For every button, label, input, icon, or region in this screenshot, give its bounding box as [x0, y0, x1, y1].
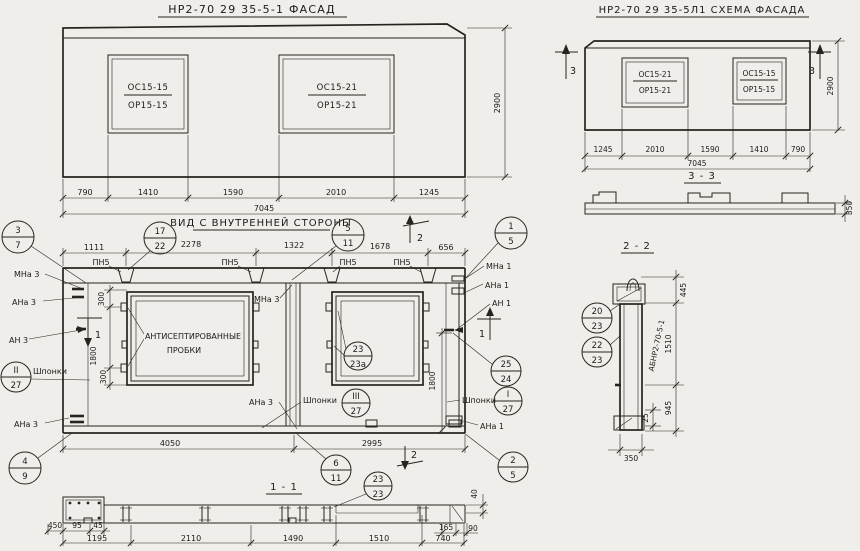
dim: 300	[97, 292, 106, 307]
inner-window-2	[326, 292, 429, 385]
callout-top: 2	[510, 456, 515, 466]
section-1-1-dimensions: 450 95 45 1195 2110 1490 1510 740 165 90…	[45, 489, 488, 546]
window-code: ОР15-21	[317, 101, 357, 111]
callout-bottom: 23	[592, 322, 603, 332]
section-mark-label: 1	[95, 330, 101, 341]
mna3-label: МНа 3	[14, 270, 39, 279]
dim-height: 2900	[493, 93, 502, 113]
schema-panel-outline	[585, 41, 810, 130]
callout-top: 25	[501, 360, 512, 370]
dim: 1245	[593, 145, 612, 154]
an3-label: АН 3	[9, 336, 28, 345]
ana3-label: АНа 3	[12, 298, 36, 307]
window-code: ОР15-21	[639, 86, 671, 95]
dim: 945	[664, 401, 673, 416]
dim: 1800	[89, 346, 98, 365]
dim: 2995	[362, 439, 382, 448]
section-mark-label: 1	[479, 329, 485, 340]
callout-bottom: 23	[592, 356, 603, 366]
section-band	[63, 497, 465, 523]
dim: 1410	[138, 188, 158, 197]
section-2-mark-bottom: 2	[397, 446, 423, 470]
dim: 445	[679, 283, 688, 298]
callout-II-27: II 27 Шпонки	[1, 362, 90, 392]
section-mark-label: 3	[809, 66, 815, 77]
callout-6-11: 6 11	[297, 434, 351, 485]
callout-bottom: 27	[351, 407, 362, 417]
window-code: ОС15-15	[743, 69, 776, 78]
schema-title: НР2-70 29 35-5Л1 СХЕМА ФАСАДА	[599, 5, 806, 16]
callout-17-22: 17 22	[128, 222, 176, 270]
top-notch	[420, 268, 436, 282]
dim: 1195	[87, 534, 107, 543]
dim-total: 7045	[687, 159, 706, 168]
dim: 95	[72, 521, 82, 530]
schema-dimensions: 1245 2010 1590 1410 790 7045 2900	[582, 38, 845, 172]
dim: 1590	[700, 145, 719, 154]
dim: 1490	[283, 534, 303, 543]
mna3-label: МНа 3	[254, 295, 279, 304]
dim: 2010	[326, 188, 346, 197]
ana1-label: АНа 1	[485, 281, 509, 290]
rib-markers	[120, 506, 429, 522]
callout-I-27: I 27 Шпонки	[447, 387, 522, 415]
facade-window-2: ОС15-21 ОР15-21	[279, 55, 394, 133]
top-notch	[248, 268, 264, 282]
section-3-mark-left: 3	[555, 44, 578, 79]
callout-bottom: 11	[331, 474, 342, 484]
pn5-label: ПН5	[221, 258, 238, 267]
inner-right-dim-chain: 1800	[428, 328, 452, 433]
blueprint-canvas: НР2-70 29 35-5-1 ФАСАД ОС15-15 ОР15-15 О…	[0, 0, 860, 551]
callout-23-23: 23 23	[334, 472, 392, 507]
inner-bottom-dimensions: 4050 2995	[60, 435, 468, 453]
callout-top: 23	[353, 345, 364, 355]
pn5-label: ПН5	[339, 258, 356, 267]
section-1-1: 1 - 1 23 23	[45, 472, 488, 546]
callout-top: I	[507, 390, 510, 400]
anchor-bracket	[452, 288, 464, 294]
panel-section-column	[614, 304, 644, 430]
dim: 25	[641, 413, 650, 423]
plugs-note-line1: АНТИСЕПТИРОВАННЫЕ	[145, 332, 241, 341]
facade-window-1: ОС15-15 ОР15-15	[108, 55, 188, 133]
dim-total: 7045	[254, 204, 274, 213]
shponki-label: Шпонки	[462, 396, 496, 405]
blueprint-sheet: НР2-70 29 35-5-1 ФАСАД ОС15-15 ОР15-15 О…	[0, 0, 860, 551]
dim: 450	[48, 521, 63, 530]
callout-bottom: 7	[15, 241, 20, 251]
callout-top: 22	[592, 341, 603, 351]
inner-window-1: АНТИСЕПТИРОВАННЫЕ ПРОБКИ	[121, 292, 259, 385]
callout-1-5: 1 5	[463, 217, 527, 281]
callout-bottom: 22	[155, 242, 166, 252]
callout-bottom: 23	[373, 490, 384, 500]
section-3-3-title: 3 - 3	[688, 171, 716, 182]
callout-bottom: 27	[503, 405, 514, 415]
section-1-1-title: 1 - 1	[270, 482, 298, 493]
callout-2-5: 2 5	[464, 433, 528, 482]
callout-23-23a: 23 23а	[334, 311, 372, 370]
callout-top: 5	[345, 224, 350, 234]
callout-bottom: 24	[501, 375, 512, 385]
facade-panel-outline	[63, 24, 465, 177]
section-2-2-title: 2 - 2	[623, 241, 651, 252]
dim: 1322	[284, 241, 304, 250]
dim: 1800	[428, 371, 437, 390]
section-1-mark-right: 1	[477, 307, 501, 340]
section-3-3-profile	[585, 203, 835, 214]
dim: 40	[470, 489, 479, 499]
window-code: ОС15-21	[639, 70, 672, 79]
shponki-label: Шпонки	[303, 396, 337, 405]
callout-top: 6	[333, 459, 338, 469]
section-mark-label: 3	[570, 66, 576, 77]
ana3-label: АНа 3	[249, 398, 273, 407]
section-2-mark-top: 2	[403, 215, 429, 244]
dim: 1410	[749, 145, 768, 154]
section-3-3: 3 - 3 350	[585, 171, 854, 222]
callout-top: III	[352, 392, 360, 402]
section-1-mark-left: 1	[77, 318, 102, 347]
schema-drawing: НР2-70 29 35-5Л1 СХЕМА ФАСАДА ОС15-21 ОР…	[555, 5, 845, 172]
callout-III-27: III 27 Шпонки	[262, 389, 370, 428]
facade-drawing: НР2-70 29 35-5-1 ФАСАД ОС15-15 ОР15-15 О…	[60, 3, 512, 218]
section-3-mark-right: 3	[808, 44, 831, 79]
dim: 2278	[181, 240, 201, 249]
inner-view-title: ВИД С ВНУТРЕННЕЙ СТОРОНЫ	[170, 216, 352, 229]
callout-bottom: 9	[22, 472, 27, 482]
window-code: ОС15-21	[317, 83, 358, 93]
ana3-label: АНа 3	[14, 420, 38, 429]
callout-bottom: 27	[11, 381, 22, 391]
dim: 350	[624, 454, 639, 463]
callout-top: 3	[15, 226, 20, 236]
callout-top: 1	[508, 222, 513, 232]
dim: 1678	[370, 242, 390, 251]
dim: 165	[439, 523, 454, 532]
dim: 656	[438, 243, 453, 252]
dim-height: 2900	[826, 76, 835, 95]
callout-bottom: 5	[510, 471, 515, 481]
callout-top: 23	[373, 475, 384, 485]
mullion	[286, 283, 300, 426]
section-mark-label: 2	[417, 233, 423, 244]
dim: 740	[435, 534, 450, 543]
callout-top: II	[13, 366, 18, 376]
dim: 4050	[160, 439, 180, 448]
window-code: ОС15-15	[128, 83, 169, 93]
an1-label: АН 1	[492, 299, 511, 308]
callout-top: 4	[22, 457, 27, 467]
dim-thickness: 350	[845, 201, 854, 216]
plugs-note-line2: ПРОБКИ	[167, 346, 201, 355]
anchor-bracket	[452, 276, 464, 281]
dim: 790	[791, 145, 806, 154]
callout-4-9: 4 9	[9, 433, 72, 484]
dim: 1590	[223, 188, 243, 197]
callout-top: 20	[592, 307, 603, 317]
window-code: ОР15-15	[743, 85, 775, 94]
schema-window-2: ОС15-15 ОР15-15	[733, 58, 786, 104]
pn5-label: ПН5	[92, 258, 109, 267]
lifting-loop	[627, 279, 639, 291]
callout-bottom: 5	[508, 237, 513, 247]
dim: 45	[93, 521, 103, 530]
top-notch	[324, 268, 340, 282]
callout-top: 17	[155, 227, 166, 237]
ana1-label: АНа 1	[480, 422, 504, 431]
dim: 1510	[369, 534, 389, 543]
facade-title: НР2-70 29 35-5-1 ФАСАД	[168, 3, 335, 16]
section-mark-label: 2	[411, 450, 417, 461]
callout-bottom: 23а	[350, 360, 366, 370]
facade-dimensions: 790 1410 1590 2010 1245 7045 2900	[60, 25, 512, 218]
callout-20-23: 20 23	[582, 303, 620, 333]
section-2-2: 2 - 2 20 23 22 23 АБНР2-70-5-1 4	[582, 241, 688, 463]
dim: 790	[77, 188, 92, 197]
dim: 1510	[664, 334, 673, 353]
dim: 1245	[419, 188, 439, 197]
callout-25-24: 25 24	[453, 333, 521, 386]
pn5-label: ПН5	[393, 258, 410, 267]
shponki-label: Шпонки	[33, 367, 67, 376]
inner-view-drawing: ВИД С ВНУТРЕННЕЙ СТОРОНЫ	[1, 215, 528, 485]
mna1-label: МНа 1	[486, 262, 511, 271]
dim: 2010	[645, 145, 664, 154]
window-code: ОР15-15	[128, 101, 168, 111]
dim: 90	[468, 524, 478, 533]
dim: 2110	[181, 534, 201, 543]
schema-window-1: ОС15-21 ОР15-21	[622, 58, 688, 107]
callout-bottom: 11	[343, 239, 354, 249]
callout-22-23: 22 23	[582, 336, 620, 367]
dim: 1111	[84, 243, 104, 252]
top-notch	[118, 268, 134, 282]
dim: 300	[99, 370, 108, 385]
pn5-labels: ПН5 ПН5 ПН5 ПН5	[92, 258, 421, 272]
